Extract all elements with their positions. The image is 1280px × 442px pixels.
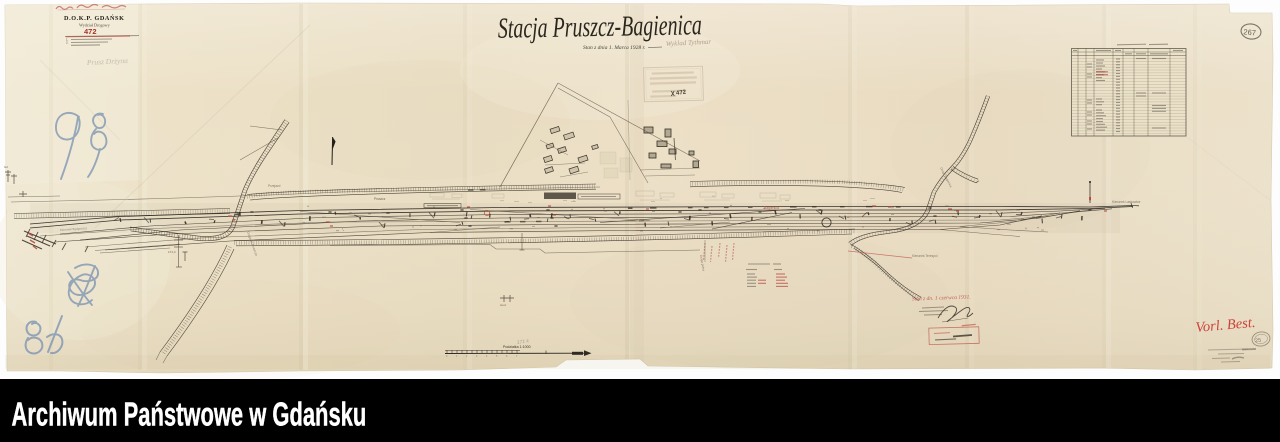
svg-text:25: 25 <box>1255 338 1262 345</box>
svg-text:2.: 2. <box>66 41 69 45</box>
svg-text:Stan z dnia 1. Marca 1928 r.: Stan z dnia 1. Marca 1928 r. <box>583 45 646 51</box>
svg-text:171,4: 171,4 <box>168 250 176 254</box>
svg-text:Archiwum Państwowe w Gdańsku: Archiwum Państwowe w Gdańsku <box>12 396 367 433</box>
svg-text:Kierunek Laskowice: Kierunek Laskowice <box>1112 200 1141 204</box>
svg-text:267: 267 <box>1243 27 1256 37</box>
svg-text:Gd: Gd <box>4 165 8 169</box>
svg-text:Pruszcz: Pruszcz <box>374 197 386 201</box>
svg-text:Przejazd: Przejazd <box>268 184 281 188</box>
svg-text:D.O.K.P. GDAŃSK: D.O.K.P. GDAŃSK <box>64 14 125 22</box>
svg-text:472: 472 <box>84 27 97 36</box>
svg-text:Bagienica: Bagienica <box>764 206 779 210</box>
svg-text:Kierunek Terespol: Kierunek Terespol <box>912 254 938 258</box>
svg-text:stud.: stud. <box>500 303 507 307</box>
